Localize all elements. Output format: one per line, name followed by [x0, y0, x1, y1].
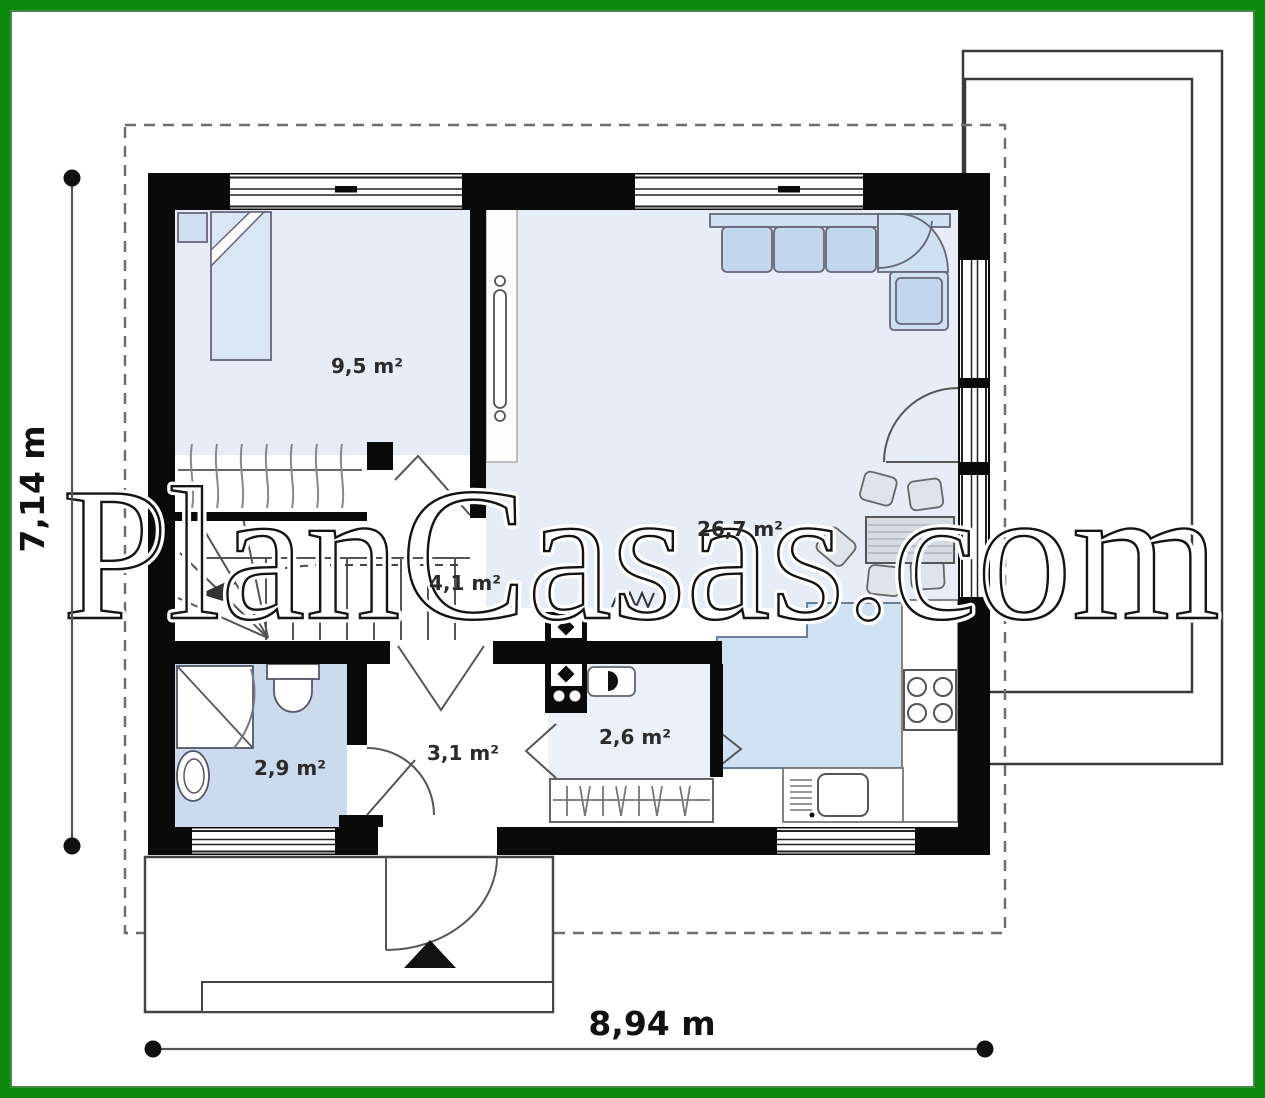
bedroom-area-label: 9,5 m²: [331, 354, 403, 378]
hall-area-label: 3,1 m²: [427, 741, 499, 765]
wall-pantry-right: [710, 664, 723, 777]
floor-plan-drawing: PlanCasas.com PlanCasas.com 9,5 m² 26,7 …: [0, 0, 1265, 1098]
living-room-area-label: 26,7 m²: [697, 517, 783, 541]
entrance-porch: [145, 857, 553, 1012]
window: [230, 175, 462, 209]
stove-icon: [904, 670, 956, 730]
wardrobe: [550, 779, 713, 822]
width-dimension-label: 8,94 m: [588, 1004, 715, 1043]
wall-bathroom-right: [347, 664, 367, 745]
sofa-cushion: [774, 227, 824, 272]
shower: [177, 666, 254, 749]
staircase-area-label: 4,1 m²: [429, 571, 501, 595]
sofa-cushion: [896, 278, 942, 324]
watermark-text: PlanCasas.com: [62, 450, 1220, 660]
kitchen-sink: [783, 768, 903, 822]
radiator: [486, 208, 517, 462]
floor-plan-page: PlanCasas.com PlanCasas.com 9,5 m² 26,7 …: [0, 0, 1265, 1098]
height-dimension-label: 7,14 m: [13, 425, 52, 552]
watermark: PlanCasas.com PlanCasas.com: [62, 450, 1220, 660]
bathroom-area-label: 2,9 m²: [254, 756, 326, 780]
sofa-cushion: [826, 227, 876, 272]
porch-step: [202, 982, 553, 1012]
window: [960, 260, 988, 378]
dimension-endpoint-dot: [64, 170, 81, 187]
sofa-cushion: [722, 227, 772, 272]
washbasin: [177, 751, 209, 801]
nightstand: [178, 213, 207, 242]
dimension-endpoint-dot: [977, 1041, 994, 1058]
window: [635, 175, 863, 209]
radiator-panel: [494, 290, 506, 408]
window: [192, 829, 335, 854]
dimension-endpoint-dot: [145, 1041, 162, 1058]
pantry-area-label: 2,6 m²: [599, 725, 671, 749]
sink-basin: [818, 774, 868, 816]
wall-bathroom-pier: [339, 815, 383, 842]
dimension-endpoint-dot: [64, 838, 81, 855]
window: [777, 829, 915, 854]
